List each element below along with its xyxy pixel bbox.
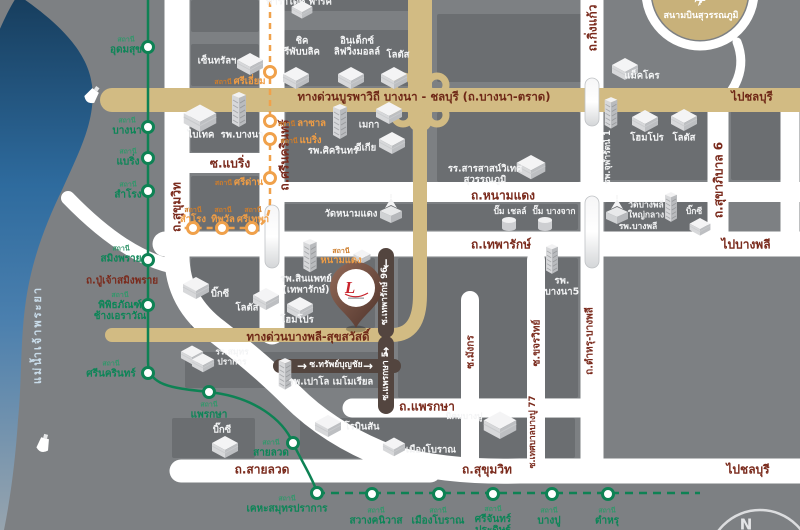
tower-building-icon	[665, 192, 677, 222]
box-building-icon	[612, 58, 638, 80]
roads	[68, 0, 800, 471]
compass-circle	[708, 510, 800, 530]
ferry-boat-icon	[36, 433, 52, 453]
tower-building-icon	[279, 358, 292, 390]
tower-building-icon	[303, 239, 316, 272]
tower-building-icon	[333, 104, 347, 139]
location-map: ✈ L ทางด่วนบูรพาวิถี บางนา - ชลบุรี (ถ.บ…	[0, 0, 800, 530]
tower-building-icon	[605, 97, 618, 129]
airplane-icon: ✈	[694, 0, 707, 10]
map-graphics: ✈ L	[0, 0, 800, 530]
tower-building-icon	[546, 244, 558, 274]
gas-building-icon	[538, 217, 552, 231]
tower-building-icon	[232, 92, 246, 127]
gas-building-icon	[502, 217, 516, 231]
